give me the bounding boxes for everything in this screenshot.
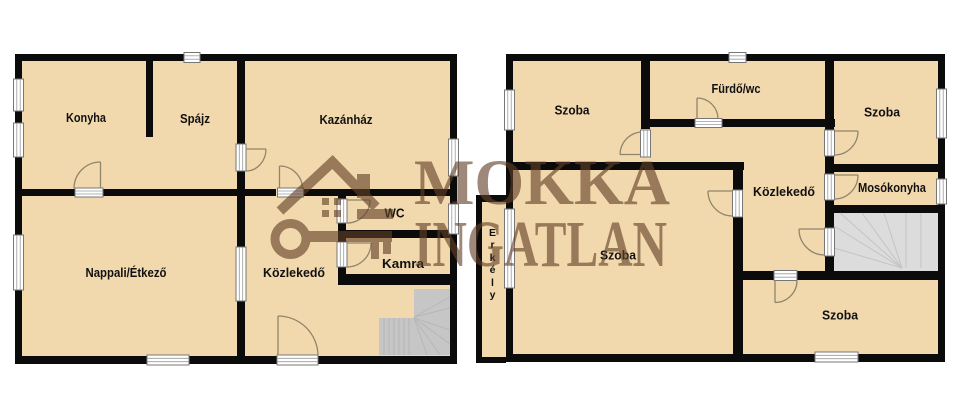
svg-text:Mosókonyha: Mosókonyha xyxy=(858,180,927,195)
svg-text:Közlekedő: Közlekedő xyxy=(753,184,815,199)
svg-text:INGATLAN: INGATLAN xyxy=(414,208,667,281)
svg-text:y: y xyxy=(490,289,496,301)
svg-text:Kazánház: Kazánház xyxy=(320,112,373,127)
svg-text:Szoba: Szoba xyxy=(555,103,591,118)
svg-text:Közlekedő: Közlekedő xyxy=(263,265,325,280)
svg-text:Szoba: Szoba xyxy=(864,105,901,120)
svg-text:Szoba: Szoba xyxy=(822,308,859,323)
svg-text:Spájz: Spájz xyxy=(180,111,210,126)
svg-text:Fürdő/wc: Fürdő/wc xyxy=(712,81,761,96)
svg-text:Konyha: Konyha xyxy=(66,110,107,125)
svg-text:Nappali/Étkező: Nappali/Étkező xyxy=(86,265,167,280)
